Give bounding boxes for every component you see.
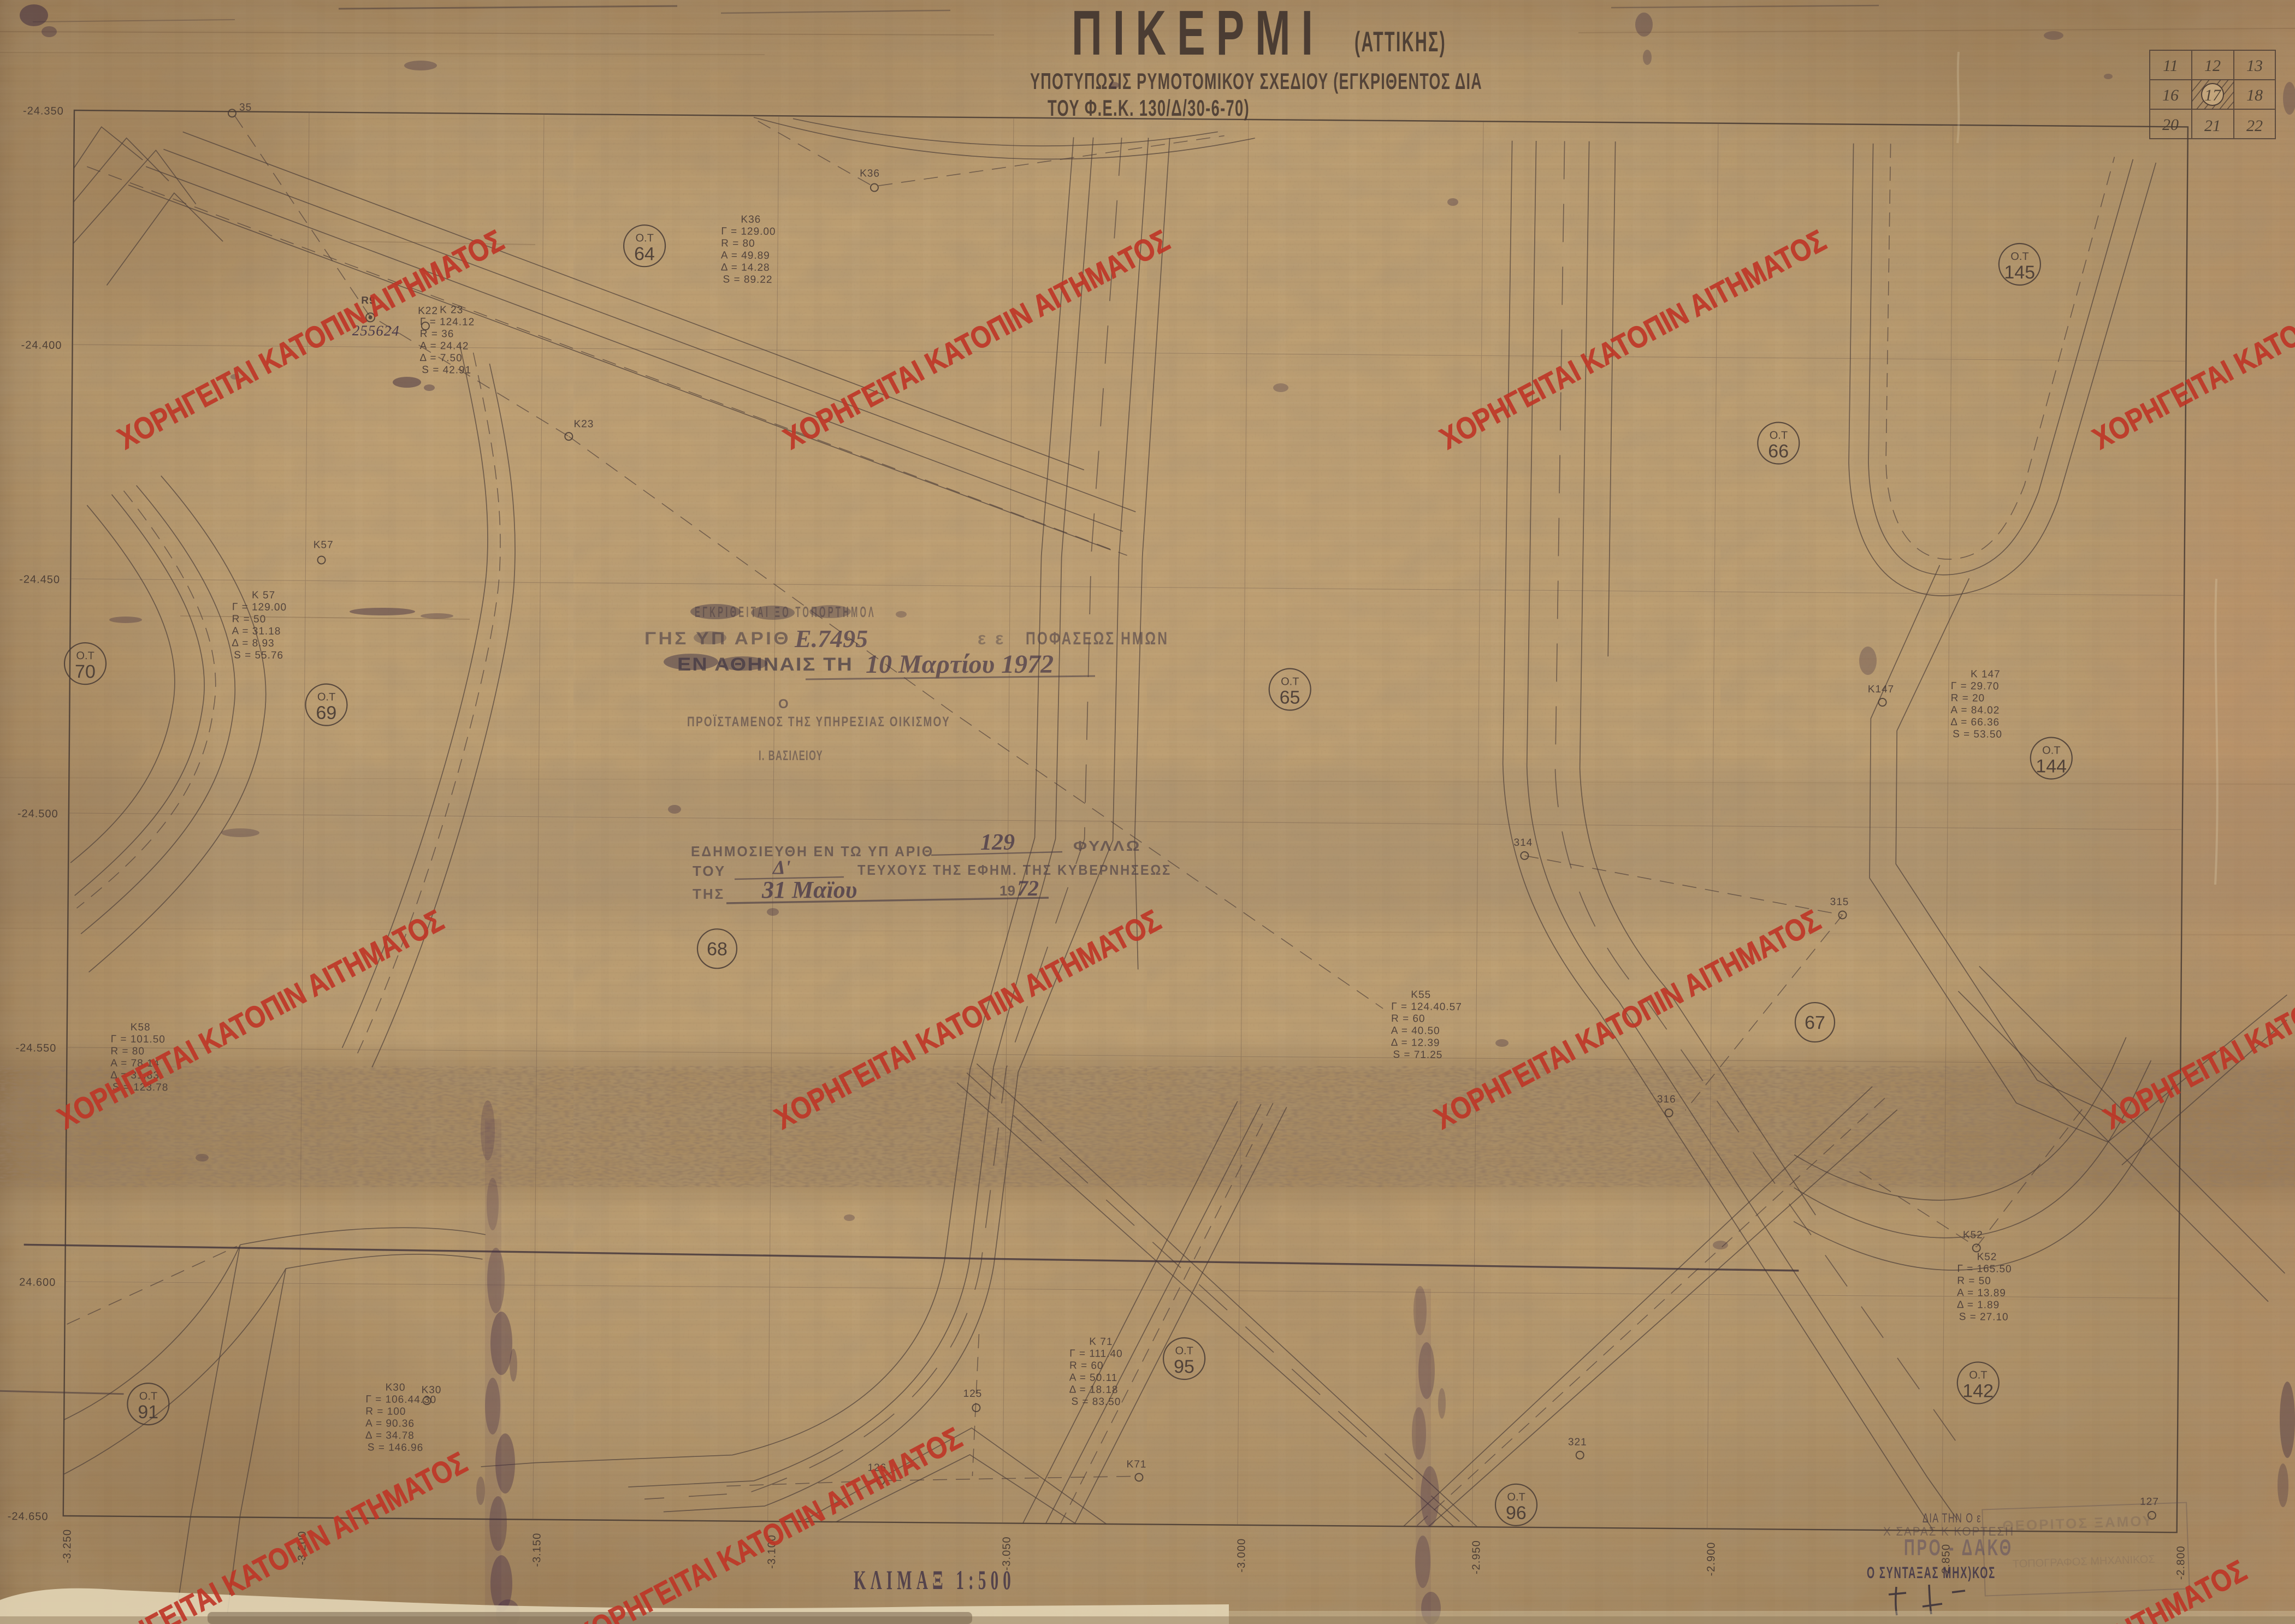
svg-text:-24.650: -24.650 [8,1510,49,1523]
svg-text:S = 42.91: S = 42.91 [422,364,471,376]
svg-text:ε ε: ε ε [978,629,1005,648]
svg-text:A = 13.89: A = 13.89 [1957,1287,2006,1299]
svg-text:S = 71.25: S = 71.25 [1393,1049,1442,1061]
svg-text:-3.250: -3.250 [61,1529,73,1563]
svg-text:-3.150: -3.150 [531,1533,543,1567]
svg-text:Ο.Τ: Ο.Τ [635,232,654,244]
svg-text:ΚΛΙΜΑΞ 1:500: ΚΛΙΜΑΞ 1:500 [854,1564,1015,1595]
svg-text:Ο.Τ: Ο.Τ [76,650,94,662]
svg-text:129: 129 [980,830,1015,855]
svg-text:A = 31.18: A = 31.18 [232,625,281,637]
svg-text:(ΑΤΤΙΚΗΣ): (ΑΤΤΙΚΗΣ) [1354,26,1446,58]
svg-text:S = 146.96: S = 146.96 [368,1442,424,1454]
svg-text:-24.400: -24.400 [21,339,62,352]
svg-text:Γ = 29.70: Γ = 29.70 [1951,680,2000,692]
svg-text:Γ = 124.40.57: Γ = 124.40.57 [1391,1001,1462,1013]
svg-text:Δ = 1.89: Δ = 1.89 [1957,1299,2000,1311]
svg-text:314: 314 [1513,837,1533,849]
svg-text:-2.800: -2.800 [2175,1545,2187,1580]
svg-text:95: 95 [1174,1356,1194,1377]
svg-text:72: 72 [1017,876,1039,900]
svg-text:K147: K147 [1868,684,1895,695]
svg-text:12: 12 [2204,57,2221,75]
svg-text:A = 24.42: A = 24.42 [420,340,469,352]
svg-text:64: 64 [634,244,655,264]
svg-text:316: 316 [1657,1094,1676,1105]
svg-text:ΠΙΚΕΡΜΙ: ΠΙΚΕΡΜΙ [1072,0,1324,68]
svg-text:22: 22 [2246,117,2263,135]
svg-text:ΤΟΥ: ΤΟΥ [693,863,726,879]
svg-text:144: 144 [2036,756,2067,777]
svg-text:67: 67 [1805,1012,1825,1033]
svg-text:125: 125 [963,1388,983,1400]
svg-text:Δʹ: Δʹ [772,856,791,878]
svg-text:Ο.Τ: Ο.Τ [2042,744,2061,756]
svg-text:91: 91 [138,1402,158,1423]
svg-text:Δ = 34.78: Δ = 34.78 [365,1430,415,1442]
svg-text:ΤΗΣ: ΤΗΣ [693,886,725,902]
svg-text:20: 20 [2162,116,2179,134]
svg-text:Γ = 111.40: Γ = 111.40 [1069,1348,1123,1360]
svg-text:19: 19 [999,882,1015,899]
svg-text:K52: K52 [1977,1251,1997,1263]
svg-text:K57: K57 [314,539,334,550]
svg-text:K71: K71 [1127,1459,1147,1470]
svg-text:ΠΟΦΑΣΕΩΣ ΗΜΩΝ: ΠΟΦΑΣΕΩΣ ΗΜΩΝ [1026,629,1169,648]
svg-text:K55: K55 [1411,989,1431,1000]
svg-text:Γ = 129.00: Γ = 129.00 [721,226,776,238]
svg-text:Ο.Τ: Ο.Τ [1175,1345,1193,1357]
svg-text:R = 50: R = 50 [232,613,267,625]
svg-text:127: 127 [2140,1496,2159,1508]
svg-text:21: 21 [2204,117,2221,135]
svg-text:Γ = 101.50: Γ = 101.50 [111,1034,165,1046]
svg-text:-24.500: -24.500 [17,808,58,820]
svg-text:11: 11 [2163,57,2178,75]
svg-text:Δ = 14.28: Δ = 14.28 [721,262,770,274]
svg-text:-2.950: -2.950 [1470,1540,1482,1574]
svg-text:ΦΥΛΛΩ: ΦΥΛΛΩ [1073,838,1141,854]
svg-text:A = 49.89: A = 49.89 [721,250,770,262]
svg-text:K36: K36 [741,214,761,226]
svg-text:Ι. ΒΑΣΙΛΕΙΟΥ: Ι. ΒΑΣΙΛΕΙΟΥ [759,748,823,763]
svg-text:142: 142 [1962,1380,1994,1401]
svg-text:Ο.Τ: Ο.Τ [2010,251,2029,263]
svg-text:65: 65 [1280,687,1300,708]
svg-text:Δ = 12.39: Δ = 12.39 [1391,1037,1440,1049]
svg-text:145: 145 [2004,262,2035,283]
svg-text:-3.000: -3.000 [1235,1538,1247,1573]
svg-text:R = 80: R = 80 [721,238,755,249]
svg-text:315: 315 [1830,896,1849,908]
svg-text:Γ = 129.00: Γ = 129.00 [232,601,287,613]
svg-text:Γ = 124.12: Γ = 124.12 [420,316,475,328]
svg-text:S = 83.50: S = 83.50 [1071,1396,1121,1408]
svg-text:Ε.7495: Ε.7495 [794,625,868,653]
svg-text:R = 60: R = 60 [1391,1013,1425,1024]
svg-text:ΕΔΗΜΟΣΙΕΥΘΗ ΕΝ ΤΩ ΥΠ ΑΡΙΘ: ΕΔΗΜΟΣΙΕΥΘΗ ΕΝ ΤΩ ΥΠ ΑΡΙΘ [691,843,934,860]
svg-text:K52: K52 [1963,1229,1983,1241]
svg-text:S = 89.22: S = 89.22 [723,274,773,286]
svg-text:-24.350: -24.350 [23,105,64,117]
svg-text:K 23: K 23 [440,304,463,316]
svg-text:K58: K58 [131,1022,151,1033]
svg-text:321: 321 [1568,1437,1587,1448]
svg-text:S = 55.76: S = 55.76 [234,649,283,661]
svg-text:66: 66 [1768,441,1789,461]
svg-text:31 Μαϊου: 31 Μαϊου [761,876,857,903]
svg-text:ΤΟΥ Φ.Ε.Κ. 130/Δ/30-6-70): ΤΟΥ Φ.Ε.Κ. 130/Δ/30-6-70) [1048,95,1250,121]
svg-text:Ο: Ο [778,697,789,712]
svg-text:Γ = 106.44.30: Γ = 106.44.30 [365,1394,436,1406]
svg-text:ΤΕΥΧΟΥΣ ΤΗΣ ΕΦΗΜ. ΤΗΣ ΚΥΒΕΡΝΗΣ: ΤΕΥΧΟΥΣ ΤΗΣ ΕΦΗΜ. ΤΗΣ ΚΥΒΕΡΝΗΣΕΩΣ [857,862,1172,878]
svg-text:R = 60: R = 60 [1069,1360,1104,1371]
svg-text:Ο.Τ: Ο.Τ [1969,1369,1988,1381]
svg-text:K22: K22 [418,305,438,317]
svg-text:A = 84.02: A = 84.02 [1950,704,2000,716]
svg-text:K30: K30 [386,1382,406,1394]
svg-text:Ο.Τ: Ο.Τ [1770,429,1788,441]
svg-text:ΔΙΑ ΤΗΝ Ο ε: ΔΙΑ ΤΗΝ Ο ε [1923,1511,1981,1526]
svg-text:Ο.Τ: Ο.Τ [1281,675,1299,687]
svg-text:-24.450: -24.450 [19,573,60,586]
svg-text:10 Μαρτίου 1972: 10 Μαρτίου 1972 [866,650,1054,679]
svg-text:Δ = 8.93: Δ = 8.93 [232,637,274,649]
svg-text:Δ = 18.18: Δ = 18.18 [1069,1384,1119,1396]
svg-text:-2.900: -2.900 [1705,1542,1717,1576]
svg-text:68: 68 [707,939,727,959]
svg-text:R = 80: R = 80 [110,1046,145,1057]
svg-text:R = 50: R = 50 [1957,1275,1991,1287]
svg-text:ΕΓΚΡΙΘΕΙΤΑΙ ΞΟ ΤΟΠΟΡΤΗΜΟΛ: ΕΓΚΡΙΘΕΙΤΑΙ ΞΟ ΤΟΠΟΡΤΗΜΟΛ [695,603,876,620]
svg-text:18: 18 [2246,86,2263,104]
svg-text:16: 16 [2162,86,2179,104]
svg-text:Ο.Τ: Ο.Τ [317,691,336,703]
svg-text:K23: K23 [573,418,594,430]
svg-text:S = 53.50: S = 53.50 [1953,728,2002,740]
svg-text:Δ = 7.50: Δ = 7.50 [419,352,462,364]
svg-text:Ο.Τ: Ο.Τ [139,1390,158,1402]
svg-text:K 57: K 57 [252,590,275,601]
svg-text:Ο.Τ: Ο.Τ [1507,1491,1525,1503]
svg-text:R = 100: R = 100 [365,1406,406,1418]
svg-text:35: 35 [239,102,252,113]
svg-text:K36: K36 [860,168,880,179]
svg-text:K 71: K 71 [1089,1336,1113,1348]
svg-text:ΠΡΟΪΣΤΑΜΕΝΟΣ ΤΗΣ ΥΠΗΡΕΣΙΑΣ ΟΙΚ: ΠΡΟΪΣΤΑΜΕΝΟΣ ΤΗΣ ΥΠΗΡΕΣΙΑΣ ΟΙΚΙΣΜΟΥ [687,714,950,730]
svg-text:R = 20: R = 20 [1951,692,1985,704]
svg-text:24.600: 24.600 [19,1276,56,1289]
svg-text:ΠΡΟ - ΔΑΚΘ: ΠΡΟ - ΔΑΚΘ [1904,1534,2013,1560]
svg-text:96: 96 [1506,1503,1527,1524]
svg-text:-24.550: -24.550 [15,1042,56,1054]
svg-text:R = 36: R = 36 [420,328,454,340]
svg-text:A = 90.36: A = 90.36 [365,1418,415,1430]
svg-text:S = 27.10: S = 27.10 [1959,1311,2009,1323]
svg-text:13: 13 [2246,57,2263,75]
svg-text:Γ = 165.50: Γ = 165.50 [1957,1263,2012,1275]
svg-text:A = 40.50: A = 40.50 [1391,1025,1440,1037]
svg-text:69: 69 [316,703,336,724]
svg-text:ΥΠΟΤΥΠΩΣΙΣ ΡΥΜΟΤΟΜΙΚΟΥ ΣΧΕΔΙΟΥ: ΥΠΟΤΥΠΩΣΙΣ ΡΥΜΟΤΟΜΙΚΟΥ ΣΧΕΔΙΟΥ (ΕΓΚΡΙΘΕΝ… [1030,68,1482,94]
svg-text:Δ = 66.36: Δ = 66.36 [1950,716,2000,728]
svg-text:17: 17 [2204,86,2222,104]
svg-text:70: 70 [75,661,96,682]
svg-text:K 147: K 147 [1971,668,2001,680]
svg-text:ΓΗΣ ΥΠ ΑΡΙΘ: ΓΗΣ ΥΠ ΑΡΙΘ [644,629,791,648]
svg-text:Ο ΣΥΝΤΑΞΑΣ ΜΗΧ)ΚΟΣ: Ο ΣΥΝΤΑΞΑΣ ΜΗΧ)ΚΟΣ [1867,1564,1996,1582]
svg-text:A = 50.11: A = 50.11 [1069,1372,1118,1384]
svg-text:ΕΝ ΑΘΗΝΑΙΣ ΤΗ: ΕΝ ΑΘΗΝΑΙΣ ΤΗ [677,654,853,675]
